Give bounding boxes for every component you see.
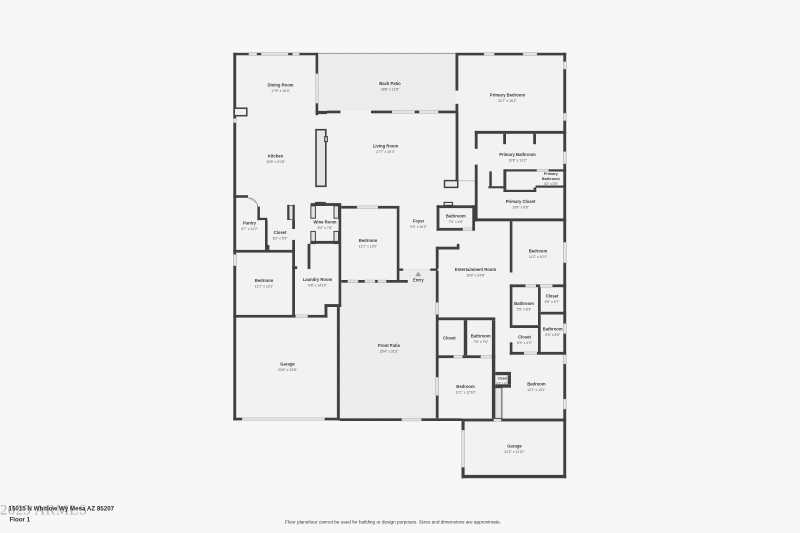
svg-text:27'7" x 19'4": 27'7" x 19'4" — [376, 150, 395, 154]
svg-text:Bathroom: Bathroom — [543, 327, 563, 332]
svg-text:5'2" x 5'9": 5'2" x 5'9" — [273, 236, 289, 240]
svg-text:Pantry: Pantry — [243, 221, 257, 226]
svg-text:7'6" x 4'6": 7'6" x 4'6" — [448, 220, 464, 224]
svg-text:Closet: Closet — [518, 335, 531, 340]
svg-text:Primary Bedroom: Primary Bedroom — [490, 93, 525, 98]
svg-text:Kitchen: Kitchen — [268, 154, 284, 159]
svg-text:9'3" x 10'2": 9'3" x 10'2" — [410, 225, 428, 229]
svg-text:5'9" x 4'2": 5'9" x 4'2" — [517, 341, 533, 345]
svg-text:Bathroom: Bathroom — [446, 214, 466, 219]
svg-text:28'8" x 11'8": 28'8" x 11'8" — [381, 87, 400, 91]
svg-text:5'6" x 8'5": 5'6" x 8'5" — [545, 333, 561, 337]
svg-text:12'1" x 13'0": 12'1" x 13'0" — [359, 244, 378, 248]
svg-text:26'4" x 31'5": 26'4" x 31'5" — [380, 349, 399, 353]
svg-text:Bedroom: Bedroom — [255, 278, 274, 283]
svg-text:Bedroom: Bedroom — [456, 384, 475, 389]
svg-text:12'1" x 13'1": 12'1" x 13'1" — [255, 284, 274, 288]
svg-text:Bathroom: Bathroom — [514, 301, 534, 306]
svg-text:5'5" x 8'3": 5'5" x 8'3" — [517, 307, 533, 311]
svg-text:19'8" x 21'8": 19'8" x 21'8" — [266, 160, 285, 164]
svg-text:15015 N Whitlow Wy Mesa AZ 852: 15015 N Whitlow Wy Mesa AZ 85207 — [9, 506, 115, 513]
svg-text:7'6" x 7'6": 7'6" x 7'6" — [473, 340, 489, 344]
svg-text:Garage: Garage — [280, 362, 295, 367]
svg-text:Wine Room: Wine Room — [314, 220, 337, 225]
svg-text:Floor plans/tour cannot be use: Floor plans/tour cannot be used for buil… — [285, 520, 501, 525]
svg-text:Front Patio: Front Patio — [378, 343, 401, 348]
svg-text:5'9" x 5'7": 5'9" x 5'7" — [545, 300, 561, 304]
svg-text:Bathroom: Bathroom — [471, 334, 491, 339]
svg-text:6'7" x 11'0": 6'7" x 11'0" — [241, 227, 258, 231]
svg-text:Primary: Primary — [544, 172, 559, 176]
svg-text:11'2" x 10'1": 11'2" x 10'1" — [529, 255, 548, 259]
svg-text:4'2" x 3'6": 4'2" x 3'6" — [544, 182, 558, 186]
svg-text:Floor 1: Floor 1 — [10, 517, 31, 524]
svg-text:Primary Closet: Primary Closet — [506, 199, 536, 204]
svg-text:Laundry Room: Laundry Room — [303, 277, 333, 282]
svg-text:19'8" x 24'8": 19'8" x 24'8" — [466, 273, 485, 277]
svg-text:21'2" x 11'10": 21'2" x 11'10" — [504, 450, 525, 454]
svg-text:Primary Bathroom: Primary Bathroom — [499, 152, 536, 157]
svg-text:Foyer: Foyer — [413, 219, 425, 224]
svg-text:Garage: Garage — [507, 444, 522, 449]
svg-text:23'6" x 23'8": 23'6" x 23'8" — [278, 368, 297, 372]
svg-text:Living Room: Living Room — [373, 144, 399, 149]
svg-text:9'8" x 14'10": 9'8" x 14'10" — [308, 283, 327, 287]
svg-text:Entry: Entry — [413, 278, 424, 283]
svg-text:11'1" x 12'10": 11'1" x 12'10" — [455, 390, 476, 394]
svg-text:Bedroom: Bedroom — [527, 382, 546, 387]
svg-text:5'2" x 7'6": 5'2" x 7'6" — [318, 226, 334, 230]
svg-text:Bathroom: Bathroom — [542, 177, 561, 181]
svg-text:Entertainment Room: Entertainment Room — [455, 267, 496, 272]
svg-text:22'7" x 16'2": 22'7" x 16'2" — [498, 99, 517, 103]
svg-text:Bedroom: Bedroom — [359, 238, 378, 243]
svg-text:Closet: Closet — [443, 336, 456, 341]
svg-text:10'8" x 13'2": 10'8" x 13'2" — [508, 158, 527, 162]
svg-text:Back Patio: Back Patio — [379, 81, 401, 86]
svg-text:10'8" x 8'8": 10'8" x 8'8" — [512, 205, 530, 209]
svg-text:12'1" x 13'1": 12'1" x 13'1" — [527, 388, 546, 392]
svg-text:Bedroom: Bedroom — [529, 249, 548, 254]
svg-text:17'8" x 13'4": 17'8" x 13'4" — [271, 89, 290, 93]
svg-text:Dining Room: Dining Room — [267, 83, 293, 88]
svg-text:4'3" x 2'7": 4'3" x 2'7" — [496, 381, 509, 385]
svg-text:Closet: Closet — [274, 230, 287, 235]
svg-text:Closet: Closet — [546, 294, 559, 299]
